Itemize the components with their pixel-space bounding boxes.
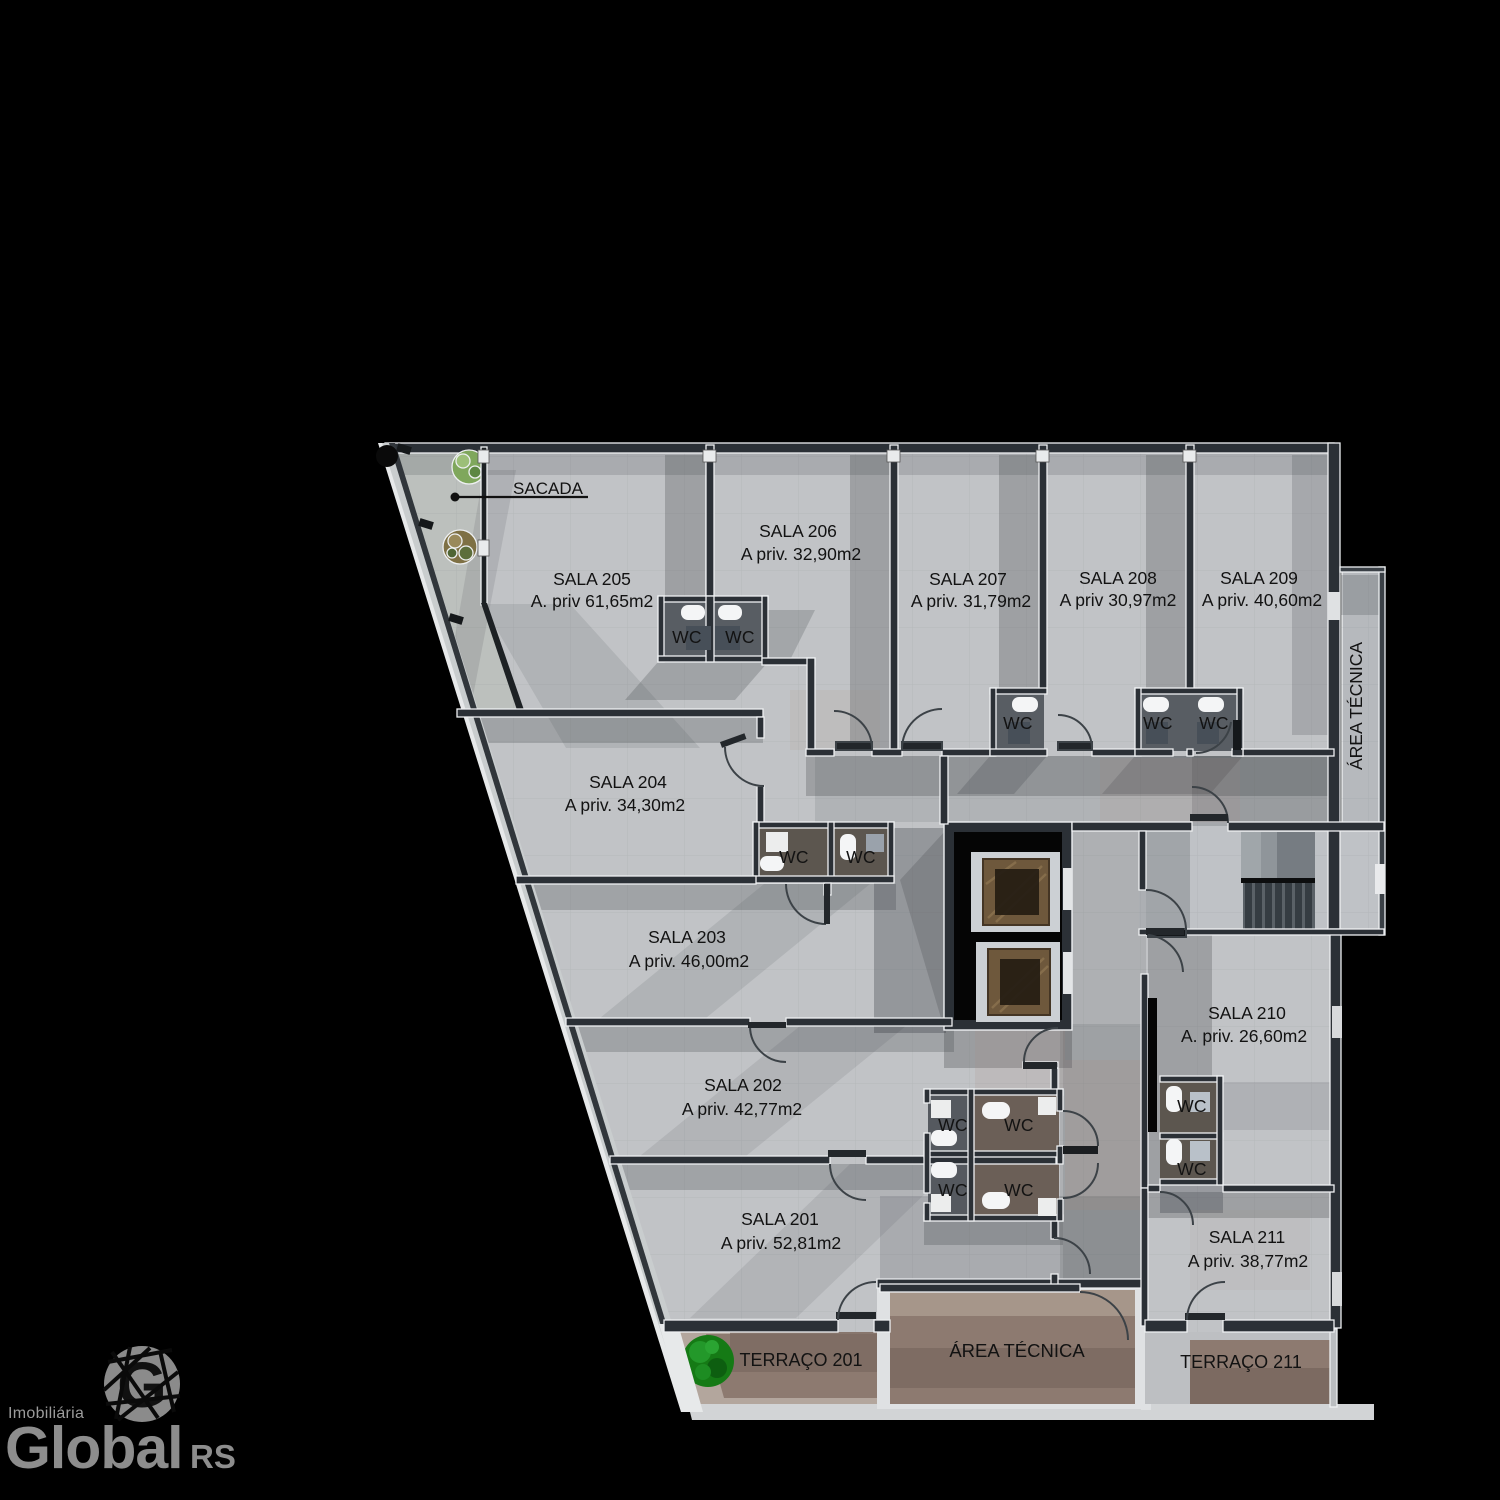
svg-text:A priv. 40,60m2: A priv. 40,60m2 [1202,590,1322,610]
svg-text:WC: WC [1177,1159,1207,1179]
svg-text:A. priv 61,65m2: A. priv 61,65m2 [531,591,654,611]
svg-text:SACADA: SACADA [513,479,584,498]
svg-text:WC: WC [1199,713,1229,733]
svg-text:SALA 204: SALA 204 [589,772,667,792]
svg-text:Global: Global [5,1415,183,1481]
svg-text:SALA 201: SALA 201 [741,1209,819,1229]
svg-text:SALA 208: SALA 208 [1079,568,1157,588]
svg-text:WC: WC [938,1115,968,1135]
svg-text:WC: WC [1177,1096,1207,1116]
svg-text:ÁREA TÉCNICA: ÁREA TÉCNICA [1346,642,1366,770]
svg-text:SALA 210: SALA 210 [1208,1003,1286,1023]
svg-text:WC: WC [1004,1180,1034,1200]
svg-text:RS: RS [190,1438,236,1475]
svg-text:SALA 209: SALA 209 [1220,568,1298,588]
svg-text:WC: WC [672,627,702,647]
svg-text:WC: WC [938,1180,968,1200]
svg-text:SALA 206: SALA 206 [759,521,837,541]
svg-text:WC: WC [1004,1115,1034,1135]
svg-text:A priv 30,97m2: A priv 30,97m2 [1060,590,1177,610]
svg-text:TERRAÇO 211: TERRAÇO 211 [1180,1352,1302,1372]
svg-text:SALA 211: SALA 211 [1209,1227,1286,1247]
svg-text:A priv. 31,79m2: A priv. 31,79m2 [911,591,1031,611]
svg-text:SALA 202: SALA 202 [704,1075,782,1095]
svg-text:A priv. 46,00m2: A priv. 46,00m2 [629,951,749,971]
svg-text:A priv. 38,77m2: A priv. 38,77m2 [1188,1251,1308,1271]
svg-text:SALA 205: SALA 205 [553,569,631,589]
svg-text:A priv. 32,90m2: A priv. 32,90m2 [741,544,861,564]
svg-text:SALA 207: SALA 207 [929,569,1007,589]
svg-text:ÁREA TÉCNICA: ÁREA TÉCNICA [949,1340,1085,1361]
svg-text:A priv. 52,81m2: A priv. 52,81m2 [721,1233,841,1253]
svg-text:TERRAÇO 201: TERRAÇO 201 [739,1350,862,1370]
svg-text:WC: WC [1143,713,1173,733]
svg-text:WC: WC [779,847,809,867]
svg-text:SALA 203: SALA 203 [648,927,726,947]
svg-text:A priv. 34,30m2: A priv. 34,30m2 [565,795,685,815]
svg-text:WC: WC [1003,713,1033,733]
svg-text:WC: WC [725,627,755,647]
svg-text:WC: WC [846,847,876,867]
svg-text:A. priv. 26,60m2: A. priv. 26,60m2 [1181,1026,1307,1046]
svg-text:A priv. 42,77m2: A priv. 42,77m2 [682,1099,802,1119]
